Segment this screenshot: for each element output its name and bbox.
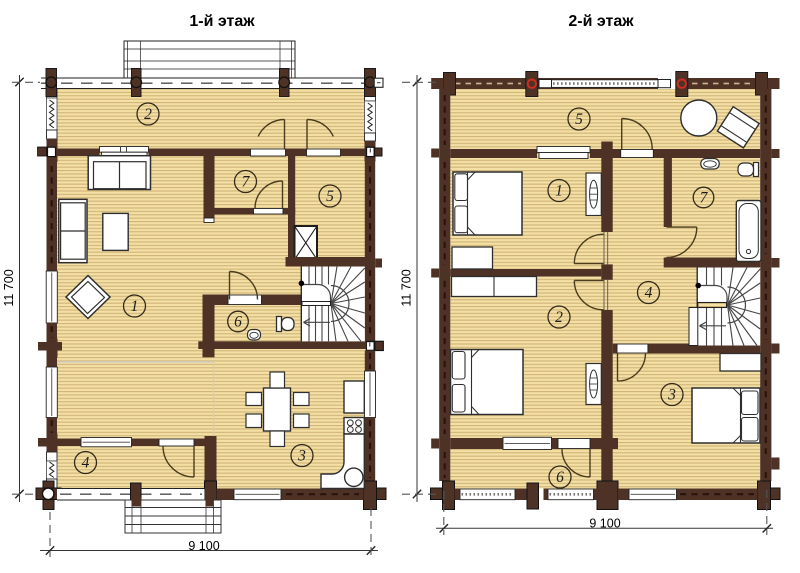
svg-text:2: 2 [555,309,563,326]
svg-text:11 700: 11 700 [2,269,16,306]
svg-text:2-й этаж: 2-й этаж [568,13,634,30]
svg-text:3: 3 [297,448,306,465]
svg-text:5: 5 [575,111,583,128]
svg-text:9 100: 9 100 [188,539,219,553]
svg-text:6: 6 [234,314,242,331]
svg-text:7: 7 [700,190,709,207]
svg-text:1: 1 [131,298,139,315]
svg-text:4: 4 [645,285,653,302]
svg-text:7: 7 [242,174,251,191]
svg-text:2: 2 [144,106,152,123]
svg-text:3: 3 [667,387,676,404]
svg-text:9 100: 9 100 [589,517,620,531]
svg-text:4: 4 [82,455,90,472]
svg-text:11 700: 11 700 [400,269,414,306]
svg-text:1-й этаж: 1-й этаж [189,13,255,30]
svg-text:5: 5 [326,188,334,205]
svg-text:1: 1 [555,183,563,200]
svg-text:6: 6 [556,469,564,486]
